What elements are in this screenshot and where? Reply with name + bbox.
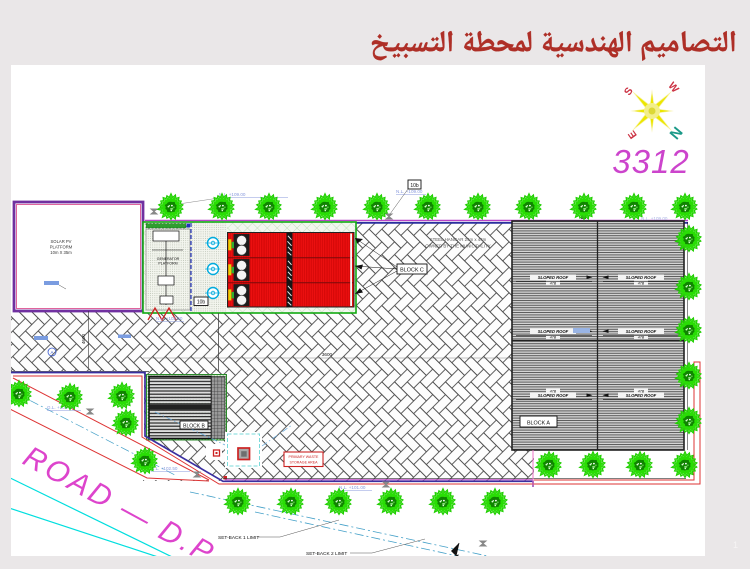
svg-text:PRIMARY WASTE: PRIMARY WASTE	[289, 455, 319, 459]
svg-text:47B: 47B	[638, 390, 645, 394]
svg-text:47B: 47B	[550, 390, 557, 394]
svg-text:N.L. +109.00: N.L. +109.00	[641, 216, 668, 221]
svg-text:47B: 47B	[638, 282, 645, 286]
svg-text:SLOPED ROOF: SLOPED ROOF	[626, 329, 657, 334]
svg-text:N.L. +101.00: N.L. +101.00	[339, 485, 366, 490]
svg-text:BLOCK B: BLOCK B	[183, 423, 205, 429]
svg-text:OWNED BY THE MUNICIPALITY: OWNED BY THE MUNICIPALITY	[425, 244, 490, 249]
svg-text:N.L. +109.00: N.L. +109.00	[396, 189, 423, 194]
svg-text:10b: 10b	[197, 300, 206, 306]
svg-text:BLOCK A: BLOCK A	[527, 421, 550, 427]
svg-text:10m X 35m: 10m X 35m	[50, 250, 72, 255]
svg-text:SLOPED ROOF: SLOPED ROOF	[538, 275, 569, 280]
svg-text:A: A	[50, 350, 53, 355]
svg-text:47B: 47B	[550, 336, 557, 340]
svg-text:N.L. +102.50: N.L. +102.50	[156, 316, 183, 321]
svg-text:STORAGE AREA: STORAGE AREA	[289, 461, 318, 465]
svg-text:SLOPED ROOF: SLOPED ROOF	[626, 275, 657, 280]
svg-text:4600: 4600	[81, 333, 86, 344]
svg-text:SLOPED ROOF: SLOPED ROOF	[538, 329, 569, 334]
svg-text:47B: 47B	[550, 282, 557, 286]
svg-text:1: 1	[733, 540, 738, 550]
svg-text:SET-BACK 1 LIMIT: SET-BACK 1 LIMIT	[218, 535, 259, 541]
svg-text:PLATFORM: PLATFORM	[158, 262, 177, 266]
svg-text:PLATFORM: PLATFORM	[50, 245, 73, 250]
svg-text:47B: 47B	[638, 336, 645, 340]
svg-text:SOLAR PV: SOLAR PV	[51, 239, 72, 244]
svg-text:3312: 3312	[612, 143, 689, 180]
svg-text:GENERATOR: GENERATOR	[157, 257, 180, 261]
svg-text:BLOCK C: BLOCK C	[400, 268, 424, 274]
svg-text:SLOPED ROOF: SLOPED ROOF	[626, 393, 657, 398]
svg-text:SLOPED ROOF: SLOPED ROOF	[538, 393, 569, 398]
svg-text:STEEL HANGAR 24m x 44m: STEEL HANGAR 24m x 44m	[430, 237, 487, 242]
svg-text:10b: 10b	[410, 183, 419, 189]
svg-text:3600: 3600	[322, 352, 333, 357]
